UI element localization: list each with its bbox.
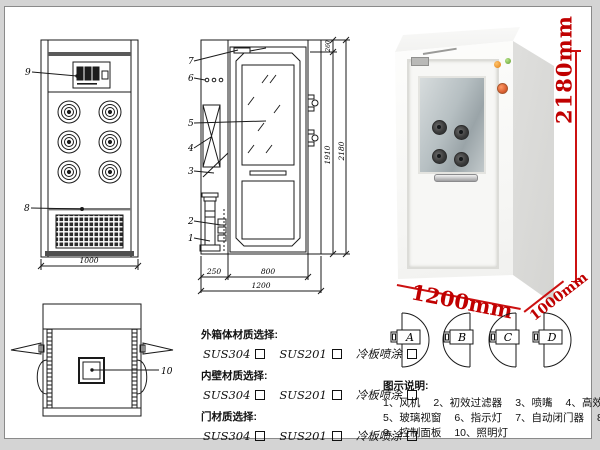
option-label: SUS304 bbox=[203, 388, 250, 402]
door-handle-outline bbox=[250, 171, 286, 175]
nozzle-grid bbox=[58, 101, 121, 183]
door-swing-options: A B C D bbox=[387, 311, 587, 377]
photo-door-glass bbox=[418, 76, 486, 174]
door-swing-b-icon[interactable]: B bbox=[439, 311, 479, 369]
callout-7-label: 7 bbox=[188, 57, 194, 67]
checkbox-outer-sus201[interactable] bbox=[332, 349, 342, 359]
side-outline bbox=[201, 40, 321, 254]
legend-item: 2、初效过滤器 bbox=[433, 396, 502, 411]
front-view-drawing: 9 8 1000 bbox=[19, 32, 181, 277]
drawing-sheet: 9 8 1000 bbox=[4, 6, 592, 439]
dim-2180: 2180 bbox=[337, 141, 346, 161]
door-swing-c-icon[interactable]: C bbox=[485, 311, 525, 369]
top-view-drawing: 10 bbox=[9, 296, 184, 436]
option-label: SUS304 bbox=[203, 347, 250, 361]
nozzle-icon bbox=[432, 149, 447, 164]
checkbox-door-sus201[interactable] bbox=[332, 431, 342, 441]
door-material-title: 门材质选择: bbox=[201, 409, 383, 424]
checkbox-inner-sus304[interactable] bbox=[255, 390, 265, 400]
legend-item: 10、照明灯 bbox=[454, 426, 508, 441]
swing-c-label: C bbox=[504, 331, 513, 344]
material-selection: 外箱体材质选择: SUS304 SUS201 冷板喷涂 内壁材质选择: SUS3… bbox=[201, 321, 383, 449]
nozzle-icon bbox=[432, 120, 447, 135]
air-shower-spec-sheet: { "front_view": { "part9": "9", "part8":… bbox=[0, 0, 600, 450]
door-outline bbox=[230, 47, 306, 252]
front-width-dim: 1000 bbox=[79, 256, 98, 265]
option-label: SUS304 bbox=[203, 429, 250, 443]
door-swing-a-icon[interactable]: A bbox=[391, 311, 431, 369]
callout-9-label: 9 bbox=[25, 68, 31, 78]
outer-box-material-title: 外箱体材质选择: bbox=[201, 327, 383, 342]
dim-250: 250 bbox=[206, 267, 222, 276]
swing-a-label: A bbox=[405, 331, 414, 344]
legend: 图示说明: 1、风机 2、初效过滤器 3、喷嘴 4、高效过滤器 5、玻璃视窗 6… bbox=[383, 379, 599, 441]
swing-b-label: B bbox=[457, 331, 466, 344]
checkbox-inner-sus201[interactable] bbox=[332, 390, 342, 400]
air-return-grille bbox=[56, 215, 123, 248]
legend-item: 1、风机 bbox=[383, 396, 420, 411]
door-swing-d-icon[interactable]: D bbox=[533, 311, 573, 369]
option-label: SUS201 bbox=[279, 388, 326, 402]
door-closer-icon bbox=[411, 57, 429, 66]
top-outline bbox=[43, 304, 141, 416]
dim-1200: 1200 bbox=[251, 281, 270, 290]
callout-8-label: 8 bbox=[24, 204, 30, 214]
callout-4-label: 4 bbox=[187, 144, 194, 154]
callout-10-label: 10 bbox=[161, 367, 173, 377]
legend-item: 5、玻璃视窗 bbox=[383, 411, 441, 426]
legend-item: 4、高效过滤器 bbox=[566, 396, 600, 411]
legend-item: 6、指示灯 bbox=[454, 411, 502, 426]
photo-door-handle bbox=[434, 174, 478, 182]
legend-item: 3、喷嘴 bbox=[515, 396, 552, 411]
height-dimension: 2180mm bbox=[552, 0, 577, 180]
legend-item: 7、自动闭门器 bbox=[515, 411, 584, 426]
orange-indicator-lamp bbox=[494, 61, 501, 68]
callout-1-label: 1 bbox=[188, 234, 194, 244]
green-indicator-lamp bbox=[505, 58, 511, 64]
callout-2-label: 2 bbox=[187, 217, 194, 227]
callout-6-label: 6 bbox=[188, 74, 194, 84]
swing-d-label: D bbox=[547, 331, 557, 344]
nozzle-icon bbox=[454, 125, 469, 140]
legend-item: 9、控制面板 bbox=[383, 426, 441, 441]
nozzle-icon bbox=[454, 152, 469, 167]
checkbox-outer-sus304[interactable] bbox=[255, 349, 265, 359]
inner-wall-material-title: 内壁材质选择: bbox=[201, 368, 383, 383]
red-button bbox=[497, 83, 508, 94]
option-label: SUS201 bbox=[279, 347, 326, 361]
side-view-drawing: 7 6 5 4 3 2 1 260 1910 2180 250 800 1200 bbox=[174, 25, 356, 300]
legend-title: 图示说明: bbox=[383, 379, 599, 394]
callout-3-label: 3 bbox=[188, 167, 194, 177]
option-label: SUS201 bbox=[279, 429, 326, 443]
top-band bbox=[48, 52, 131, 56]
dim-260: 260 bbox=[325, 40, 332, 53]
dim-800: 800 bbox=[261, 267, 276, 276]
checkbox-door-sus304[interactable] bbox=[255, 431, 265, 441]
callout-5-label: 5 bbox=[188, 119, 194, 129]
photo-door bbox=[407, 59, 499, 269]
dim-1910: 1910 bbox=[323, 145, 332, 164]
product-photo: 2180mm 1200mm 1000mm bbox=[386, 17, 598, 317]
